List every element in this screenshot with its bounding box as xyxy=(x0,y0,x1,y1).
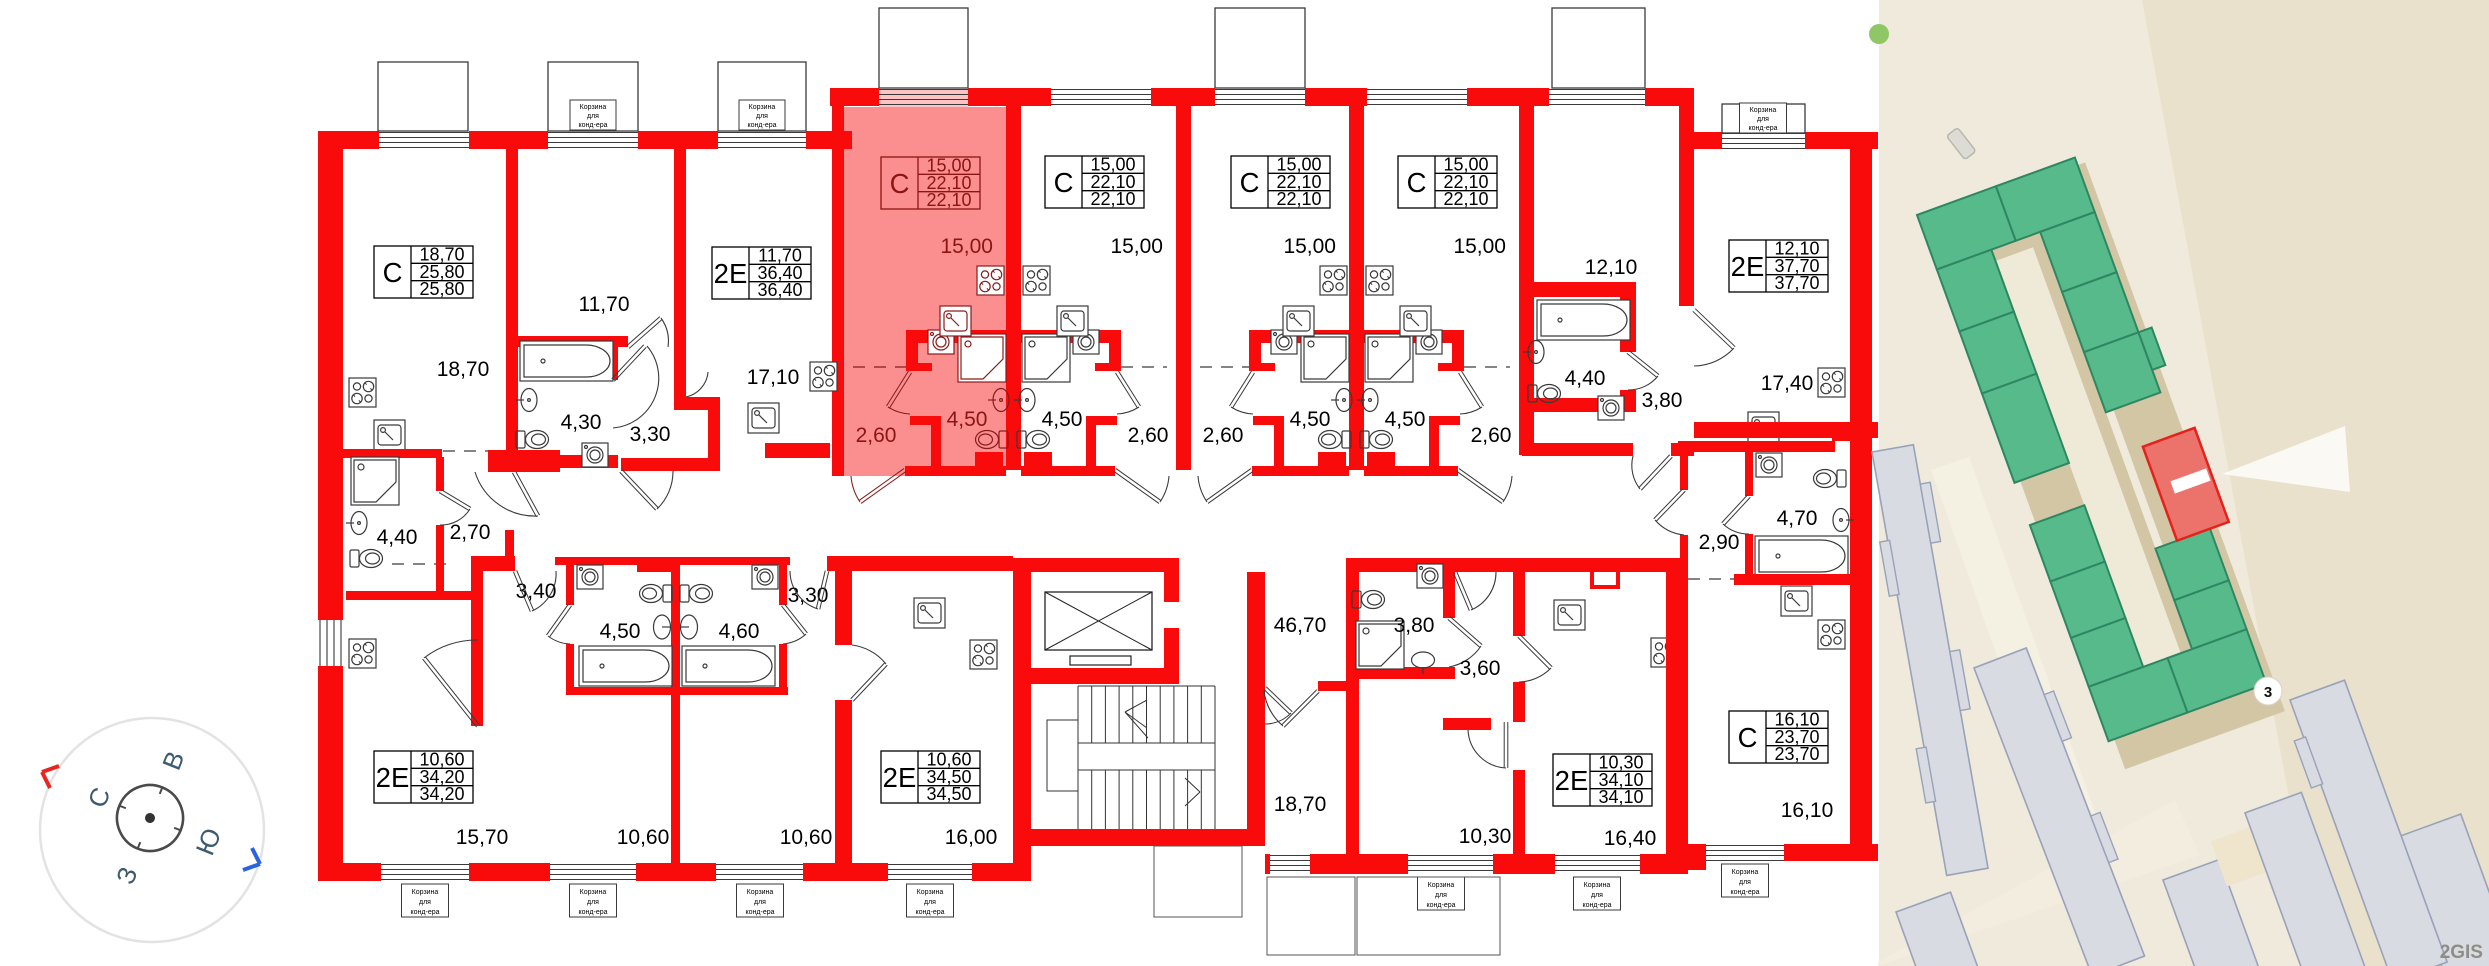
svg-text:16,10: 16,10 xyxy=(1781,799,1834,822)
svg-text:для: для xyxy=(419,899,431,906)
svg-text:2Е: 2Е xyxy=(376,762,410,793)
svg-text:конд-ера: конд-ера xyxy=(748,122,777,129)
svg-text:Корзина: Корзина xyxy=(747,889,774,896)
svg-text:16,40: 16,40 xyxy=(1604,827,1657,850)
svg-text:3,60: 3,60 xyxy=(1460,657,1501,680)
svg-text:2GIS: 2GIS xyxy=(2440,942,2483,963)
svg-text:2Е: 2Е xyxy=(714,258,748,289)
svg-text:для: для xyxy=(754,899,766,906)
svg-text:Корзина: Корзина xyxy=(412,889,439,896)
svg-text:10,60: 10,60 xyxy=(617,826,670,849)
svg-text:2Е: 2Е xyxy=(1555,765,1589,796)
svg-text:37,70: 37,70 xyxy=(1774,273,1819,293)
svg-text:для: для xyxy=(1591,892,1603,899)
svg-text:2,60: 2,60 xyxy=(1471,424,1512,447)
svg-text:15,00: 15,00 xyxy=(1453,235,1506,258)
svg-text:С: С xyxy=(1738,722,1758,753)
svg-text:34,50: 34,50 xyxy=(926,784,971,804)
svg-text:4,50: 4,50 xyxy=(600,620,641,643)
svg-text:для: для xyxy=(1757,116,1769,123)
svg-text:для: для xyxy=(1435,892,1447,899)
svg-text:12,10: 12,10 xyxy=(1585,256,1638,279)
svg-text:22,10: 22,10 xyxy=(1443,189,1488,209)
svg-text:15,70: 15,70 xyxy=(456,826,509,849)
svg-text:4,30: 4,30 xyxy=(561,411,602,434)
svg-text:15,00: 15,00 xyxy=(1283,235,1336,258)
svg-text:Корзина: Корзина xyxy=(749,104,776,111)
svg-text:11,70: 11,70 xyxy=(579,293,630,316)
svg-text:конд-ера: конд-ера xyxy=(1583,902,1612,909)
svg-text:15,00: 15,00 xyxy=(1110,235,1163,258)
svg-text:Корзина: Корзина xyxy=(1428,882,1455,889)
svg-text:4,50: 4,50 xyxy=(1385,408,1426,431)
svg-text:22,10: 22,10 xyxy=(926,190,971,210)
svg-text:конд-ера: конд-ера xyxy=(411,909,440,916)
svg-text:4,40: 4,40 xyxy=(1565,367,1606,390)
svg-text:10,30: 10,30 xyxy=(1459,825,1512,848)
svg-text:3,80: 3,80 xyxy=(1394,614,1435,637)
svg-text:4,40: 4,40 xyxy=(377,526,418,549)
svg-text:конд-ера: конд-ера xyxy=(746,909,775,916)
svg-text:23,70: 23,70 xyxy=(1774,744,1819,764)
svg-text:16,00: 16,00 xyxy=(945,826,998,849)
svg-text:2Е: 2Е xyxy=(1731,251,1765,282)
svg-text:конд-ера: конд-ера xyxy=(1731,889,1760,896)
svg-text:Корзина: Корзина xyxy=(1584,882,1611,889)
svg-text:2Е: 2Е xyxy=(883,762,917,793)
svg-text:для: для xyxy=(587,113,599,120)
svg-text:Корзина: Корзина xyxy=(1750,107,1777,114)
svg-text:15,00: 15,00 xyxy=(940,235,993,258)
svg-text:36,40: 36,40 xyxy=(757,280,802,300)
svg-text:34,20: 34,20 xyxy=(419,784,464,804)
svg-text:Корзина: Корзина xyxy=(580,889,607,896)
svg-text:С: С xyxy=(890,168,910,199)
svg-text:Корзина: Корзина xyxy=(917,889,944,896)
svg-text:22,10: 22,10 xyxy=(1090,189,1135,209)
svg-text:2,60: 2,60 xyxy=(1203,424,1244,447)
svg-text:4,50: 4,50 xyxy=(1042,408,1083,431)
svg-text:конд-ера: конд-ера xyxy=(1749,125,1778,132)
svg-text:2,70: 2,70 xyxy=(450,521,491,544)
svg-text:18,70: 18,70 xyxy=(437,358,490,381)
svg-text:2,90: 2,90 xyxy=(1699,531,1740,554)
svg-text:3,30: 3,30 xyxy=(630,423,671,446)
svg-text:С: С xyxy=(383,257,403,288)
svg-text:25,80: 25,80 xyxy=(419,279,464,299)
svg-text:34,10: 34,10 xyxy=(1598,787,1643,807)
svg-text:конд-ера: конд-ера xyxy=(579,122,608,129)
svg-text:4,70: 4,70 xyxy=(1777,507,1818,530)
svg-text:3,80: 3,80 xyxy=(1642,389,1683,412)
svg-text:2,60: 2,60 xyxy=(856,424,897,447)
svg-text:для: для xyxy=(924,899,936,906)
svg-text:4,60: 4,60 xyxy=(719,620,760,643)
svg-text:С: С xyxy=(1240,167,1260,198)
svg-text:17,40: 17,40 xyxy=(1761,372,1814,395)
svg-text:Корзина: Корзина xyxy=(1732,869,1759,876)
svg-text:10,60: 10,60 xyxy=(780,826,833,849)
svg-text:С: С xyxy=(1407,167,1427,198)
svg-text:для: для xyxy=(587,899,599,906)
svg-text:4,50: 4,50 xyxy=(1290,408,1331,431)
svg-text:конд-ера: конд-ера xyxy=(916,909,945,916)
svg-text:конд-ера: конд-ера xyxy=(579,909,608,916)
svg-text:конд-ера: конд-ера xyxy=(1427,902,1456,909)
svg-text:С: С xyxy=(1054,167,1074,198)
svg-text:17,10: 17,10 xyxy=(747,366,800,389)
svg-text:22,10: 22,10 xyxy=(1276,189,1321,209)
svg-text:46,70: 46,70 xyxy=(1274,614,1327,637)
svg-text:18,70: 18,70 xyxy=(1274,793,1327,816)
svg-text:4,50: 4,50 xyxy=(947,408,988,431)
svg-text:3: 3 xyxy=(2264,684,2272,701)
svg-text:для: для xyxy=(1739,879,1751,886)
svg-text:Корзина: Корзина xyxy=(580,104,607,111)
svg-text:для: для xyxy=(756,113,768,120)
svg-text:2,60: 2,60 xyxy=(1128,424,1169,447)
